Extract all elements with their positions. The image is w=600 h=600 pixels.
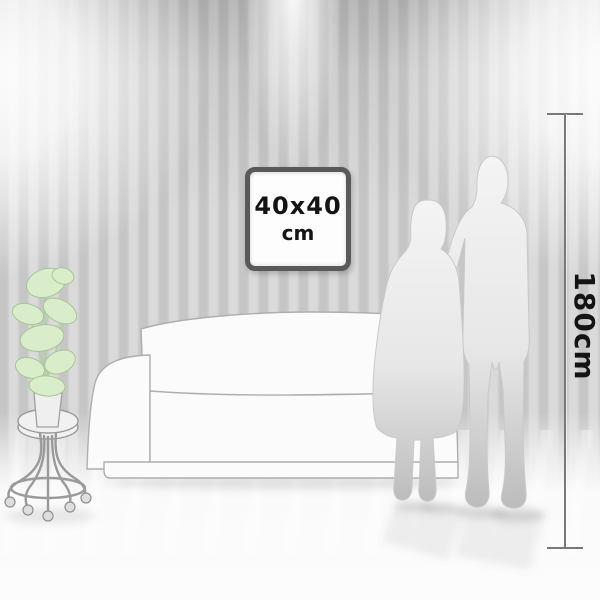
potted-plant-silhouette xyxy=(10,264,81,427)
ruler-bottom-cap xyxy=(547,547,583,549)
height-ruler: 180cm xyxy=(547,113,583,549)
artwork-size-unit: cm xyxy=(282,223,315,244)
ruler-height-label: 180cm xyxy=(569,271,599,381)
scene-illustration xyxy=(0,0,600,600)
room-scene: 40x40 cm 180cm xyxy=(0,0,600,600)
ruler-line xyxy=(564,114,566,548)
artwork-frame: 40x40 cm xyxy=(245,167,351,271)
artwork-size-text: 40x40 xyxy=(254,194,341,219)
